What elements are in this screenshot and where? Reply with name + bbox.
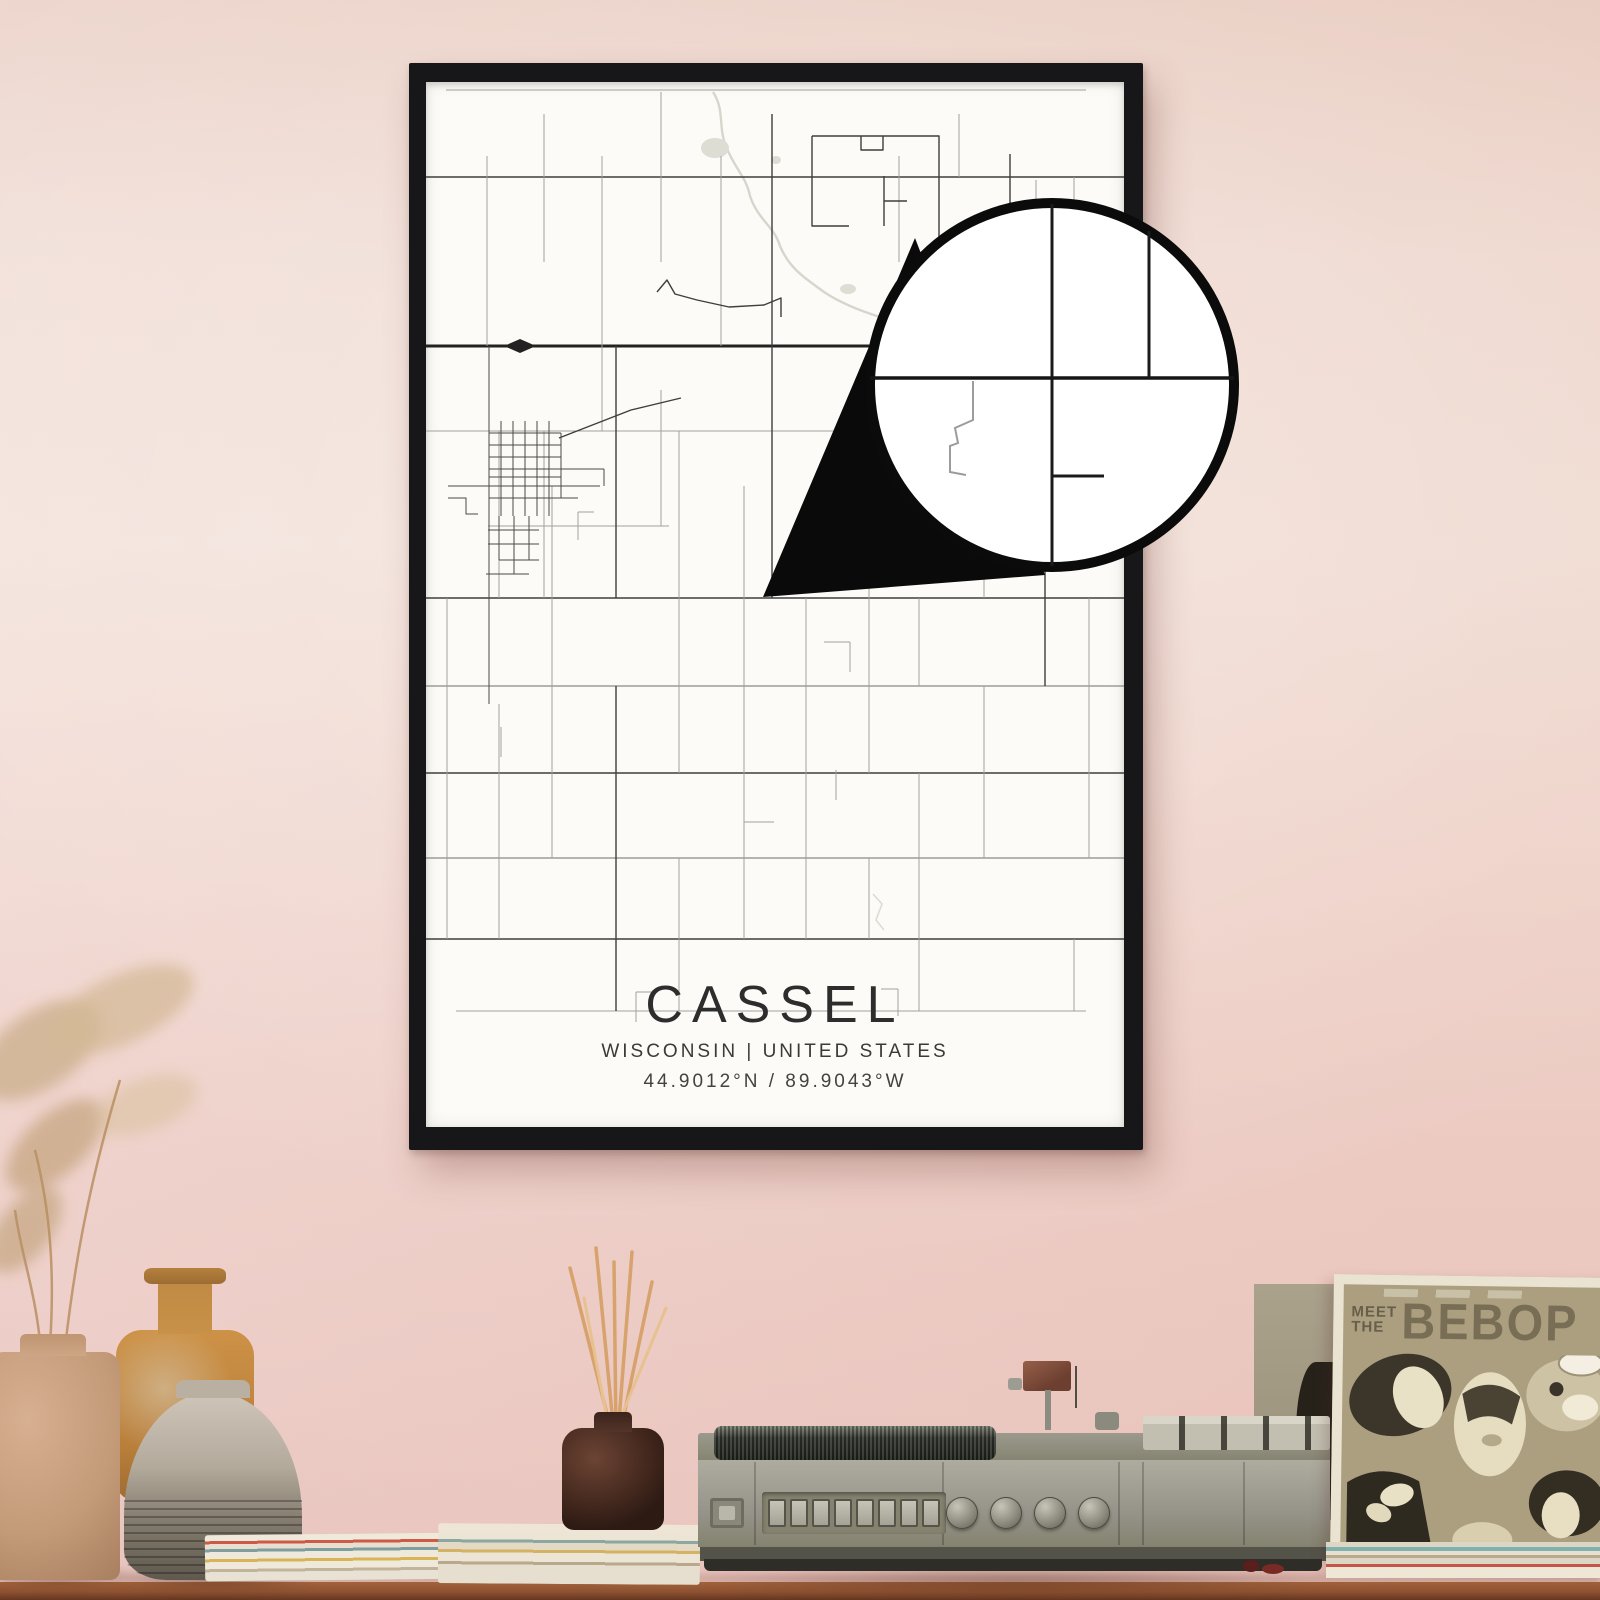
reed-diffuser-bottle (562, 1428, 664, 1530)
tonearm-cartridge (1023, 1361, 1071, 1391)
record-player (698, 1360, 1330, 1582)
cover-artwork (1340, 1352, 1600, 1556)
rotary-knob[interactable] (990, 1497, 1022, 1529)
pampas-grass (0, 930, 260, 1370)
panel-groove (1118, 1462, 1120, 1545)
rotary-knob[interactable] (946, 1497, 978, 1529)
preset-button[interactable] (900, 1499, 918, 1527)
panel-groove (1142, 1462, 1144, 1545)
records-on-table (1326, 1542, 1600, 1578)
rotary-knob[interactable] (1078, 1497, 1110, 1529)
preset-buttons (768, 1499, 940, 1527)
cable-plug (1262, 1564, 1284, 1574)
cover-title-small: MEET THE (1351, 1304, 1397, 1335)
preset-button[interactable] (834, 1499, 852, 1527)
deck-knob (1095, 1412, 1119, 1430)
preset-button[interactable] (922, 1499, 940, 1527)
preset-button[interactable] (856, 1499, 874, 1527)
power-button[interactable] (710, 1498, 744, 1528)
magazine-stack (205, 1533, 453, 1582)
preset-button[interactable] (768, 1499, 786, 1527)
preset-button[interactable] (790, 1499, 808, 1527)
preset-button[interactable] (812, 1499, 830, 1527)
cover-title-bebop: BEBOP (1401, 1291, 1579, 1353)
record-player-base-trim (704, 1559, 1322, 1571)
magazine-stack (438, 1523, 700, 1585)
cable-plug (1243, 1560, 1259, 1572)
preset-button-panel (762, 1492, 946, 1534)
room-scene: CASSEL WISCONSIN | UNITED STATES 44.9012… (0, 0, 1600, 1600)
cover-title-the: THE (1351, 1319, 1397, 1335)
tonearm-post (1045, 1390, 1051, 1430)
tonearm-antenna (1075, 1366, 1077, 1408)
tonearm-counterweight (1008, 1378, 1022, 1390)
cassette-keys[interactable] (1143, 1416, 1330, 1450)
vinyl-record-cover: MEET THE BEBOP (1330, 1274, 1600, 1566)
tan-vase (0, 1352, 120, 1580)
preset-button[interactable] (878, 1499, 896, 1527)
turntable-platter (714, 1426, 996, 1460)
panel-groove (1243, 1462, 1245, 1545)
rotary-knob[interactable] (1034, 1497, 1066, 1529)
panel-groove (754, 1462, 756, 1545)
